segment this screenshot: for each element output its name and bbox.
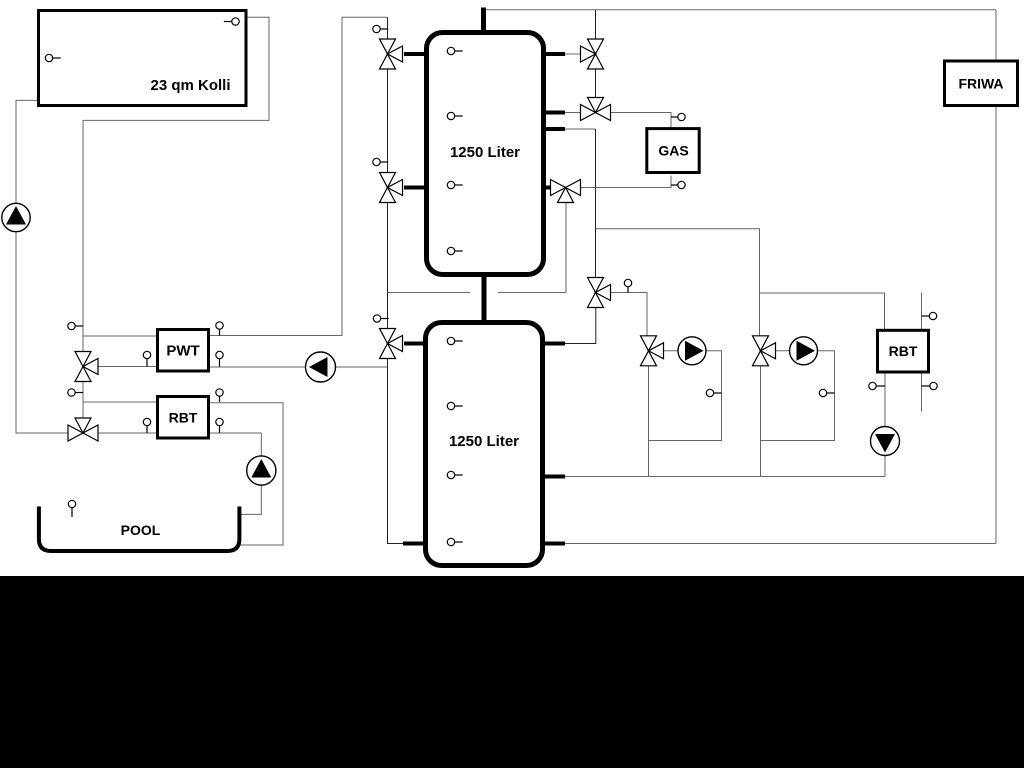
svg-text:1250 Liter: 1250 Liter <box>450 144 520 161</box>
svg-text:GAS: GAS <box>658 143 688 159</box>
svg-text:POOL: POOL <box>121 522 161 538</box>
svg-text:23 qm Kolli: 23 qm Kolli <box>150 77 230 94</box>
svg-text:RBT: RBT <box>889 343 918 359</box>
svg-text:FRIWA: FRIWA <box>958 76 1003 92</box>
svg-text:RBT: RBT <box>169 410 198 426</box>
svg-text:PWT: PWT <box>166 343 199 360</box>
svg-text:1250 Liter: 1250 Liter <box>449 433 519 450</box>
